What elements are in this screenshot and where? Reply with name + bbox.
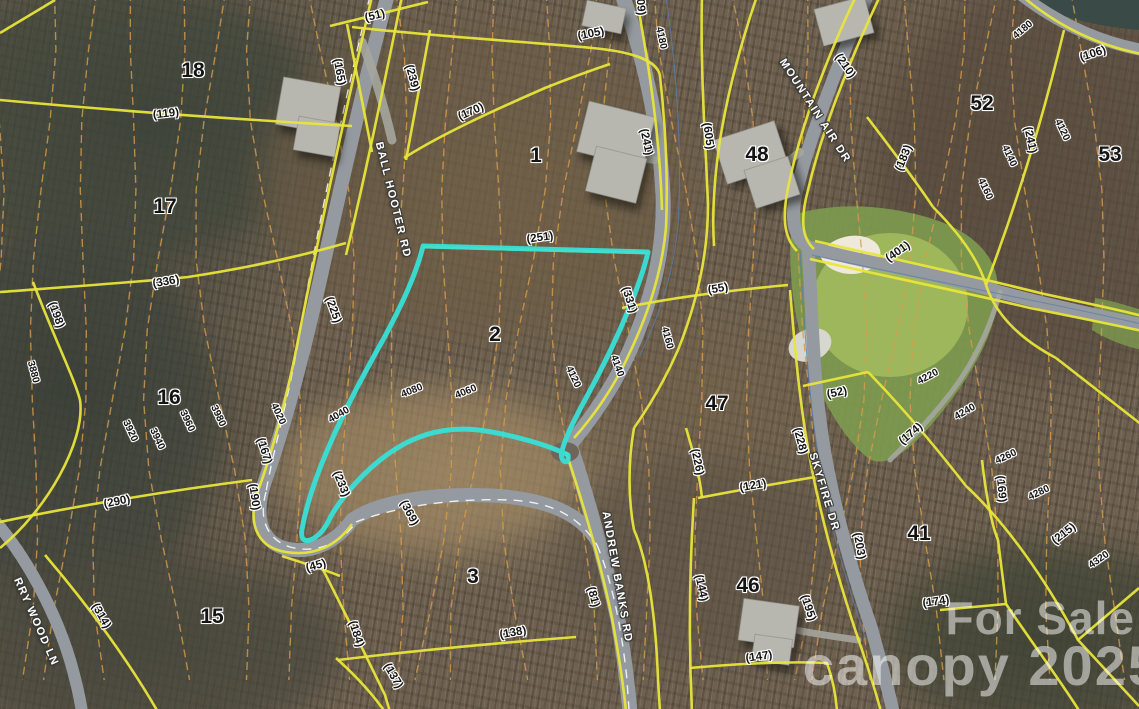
lot-dimension-label: (81) xyxy=(585,586,602,609)
road-name-label: ANDREW BANKS RD xyxy=(600,510,635,643)
lot-dimension-label: (169) xyxy=(994,475,1008,503)
parcel-number-label: 47 xyxy=(705,392,728,416)
parcel-number-label: 2 xyxy=(489,323,501,347)
contour-elevation-label: 4320 xyxy=(1087,549,1112,571)
lot-dimension-label: (198) xyxy=(46,300,66,329)
lot-dimension-label: (203) xyxy=(851,532,867,561)
lot-dimension-label: (331) xyxy=(619,285,639,314)
lot-dimension-label: (52) xyxy=(826,385,849,401)
contour-elevation-label: 4040 xyxy=(327,405,352,426)
contour-elevation-label: 4140 xyxy=(608,354,626,379)
contour-elevation-label: 4140 xyxy=(999,144,1018,169)
lot-dimension-label: (195) xyxy=(798,593,818,622)
contour-elevation-label: 4060 xyxy=(454,383,479,402)
parcel-number-label: 46 xyxy=(736,574,759,598)
lot-dimension-label: (174) xyxy=(922,594,950,610)
road-name-label: BALL HOOTER RD xyxy=(373,141,413,260)
contour-elevation-label: 4160 xyxy=(659,326,675,350)
parcel-number-label: 48 xyxy=(745,143,768,167)
parcel-number-label: 53 xyxy=(1098,143,1121,167)
parcel-number-label: 15 xyxy=(200,605,223,629)
lot-dimension-label: (605) xyxy=(700,122,716,150)
lot-dimension-label: (369) xyxy=(397,498,420,527)
lot-dimension-label: (165) xyxy=(331,58,347,87)
contour-elevation-label: 3960 xyxy=(177,409,196,434)
parcel-number-label: 16 xyxy=(157,386,180,410)
lot-dimension-label: (226) xyxy=(688,448,705,477)
parcel-number-label: 52 xyxy=(970,92,993,116)
lot-dimension-label: (215) xyxy=(1050,521,1079,547)
lot-dimension-label: (138) xyxy=(499,625,528,641)
lot-dimension-label: (290) xyxy=(103,493,132,510)
contour-elevation-label: 4180 xyxy=(1011,19,1035,42)
lot-dimension-label: (121) xyxy=(739,478,768,494)
parcel-number-label: 3 xyxy=(467,565,479,589)
contour-elevation-label: 4080 xyxy=(400,382,425,401)
contour-elevation-label: 4160 xyxy=(975,177,994,202)
lot-dimension-label: (170) xyxy=(456,101,485,123)
lot-dimension-label: (144) xyxy=(692,574,709,603)
road-name-label: SKYFIRE DR xyxy=(806,451,841,533)
lot-dimension-label: (228) xyxy=(791,426,810,455)
lot-dimension-label: (184) xyxy=(346,619,366,648)
lot-dimension-label: (336) xyxy=(152,274,181,290)
lot-dimension-label: (241) xyxy=(637,128,654,157)
contour-elevation-label: 4120 xyxy=(1052,118,1071,143)
parcel-number-label: 41 xyxy=(907,522,930,546)
contour-elevation-label: 3940 xyxy=(147,427,166,452)
lot-dimension-label: (401) xyxy=(884,239,913,264)
lot-dimension-label: (167) xyxy=(254,436,274,465)
lot-dimension-label: (51) xyxy=(364,8,387,25)
lot-dimension-label: (183) xyxy=(893,143,914,172)
lot-dimension-label: (45) xyxy=(305,557,328,574)
lot-dimension-label: (55) xyxy=(707,281,729,296)
contour-elevation-label: 4240 xyxy=(953,402,978,423)
lot-dimension-label: (137) xyxy=(381,661,405,690)
road-name-label: RRY WOOD LN xyxy=(11,576,61,668)
contour-elevation-label: 3880 xyxy=(25,360,41,384)
lot-dimension-label: (241) xyxy=(1021,126,1038,155)
parcel-number-label: 1 xyxy=(530,144,542,168)
lot-dimension-label: (233) xyxy=(330,469,351,498)
lot-dimension-label: (239) xyxy=(403,63,422,92)
map-labels: 18171615123484746525341(51)(119)(170)(10… xyxy=(0,0,1139,709)
lot-dimension-label: (190) xyxy=(246,483,262,511)
contour-elevation-label: 4120 xyxy=(563,365,582,390)
lot-dimension-label: (106) xyxy=(1078,44,1107,64)
lot-dimension-label: (210) xyxy=(832,52,857,81)
lot-dimension-label: (119) xyxy=(152,107,179,122)
contour-elevation-label: 3980 xyxy=(208,404,227,429)
contour-elevation-label: 4260 xyxy=(994,447,1019,466)
lot-dimension-label: (147) xyxy=(745,649,773,665)
lot-dimension-label: (225) xyxy=(323,295,343,324)
map-viewport[interactable]: 18171615123484746525341(51)(119)(170)(10… xyxy=(0,0,1139,709)
parcel-number-label: 17 xyxy=(153,195,176,219)
contour-elevation-label: 4020 xyxy=(268,402,287,427)
parcel-number-label: 18 xyxy=(181,59,204,83)
lot-dimension-label: (609) xyxy=(633,0,647,16)
contour-elevation-label: 4180 xyxy=(653,26,668,50)
lot-dimension-label: (251) xyxy=(526,230,554,246)
contour-elevation-label: 4220 xyxy=(916,367,941,387)
lot-dimension-label: (314) xyxy=(89,601,113,630)
contour-elevation-label: 4280 xyxy=(1027,483,1052,502)
lot-dimension-label: (174) xyxy=(897,421,925,447)
contour-elevation-label: 3920 xyxy=(120,419,139,444)
lot-dimension-label: (105) xyxy=(577,25,606,42)
